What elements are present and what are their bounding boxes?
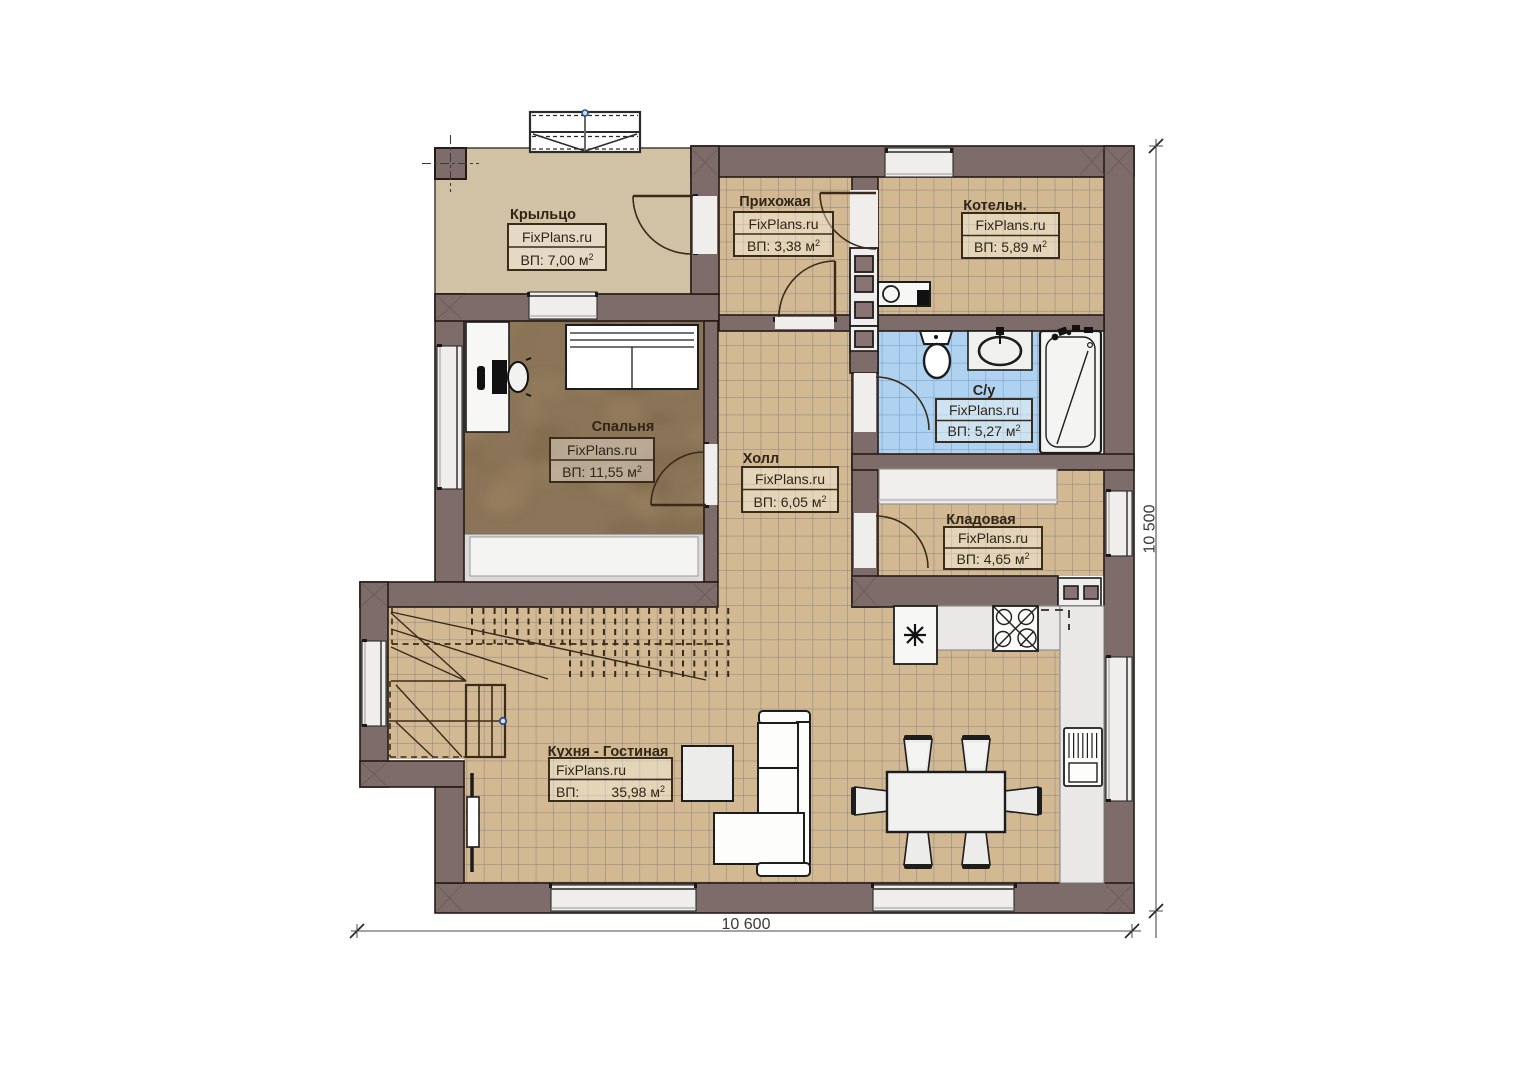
svg-text:ВП: 5,89 м2: ВП: 5,89 м2 <box>974 239 1047 255</box>
svg-text:FixPlans.ru: FixPlans.ru <box>522 229 592 245</box>
svg-text:10 500: 10 500 <box>1142 504 1159 553</box>
svg-text:10 600: 10 600 <box>722 916 771 933</box>
svg-text:Котельн.: Котельн. <box>963 198 1026 214</box>
svg-text:С/у: С/у <box>973 383 996 399</box>
svg-text:ВП: 6,05 м2: ВП: 6,05 м2 <box>754 494 827 510</box>
svg-text:FixPlans.ru: FixPlans.ru <box>748 216 818 232</box>
svg-text:ВП: 7,00 м2: ВП: 7,00 м2 <box>521 252 594 268</box>
svg-text:35,98 м2: 35,98 м2 <box>611 784 665 800</box>
svg-text:ВП: 3,38 м2: ВП: 3,38 м2 <box>747 238 820 254</box>
svg-text:FixPlans.ru: FixPlans.ru <box>556 762 626 778</box>
svg-text:Прихожая: Прихожая <box>739 194 811 210</box>
svg-text:FixPlans.ru: FixPlans.ru <box>949 402 1019 418</box>
svg-text:FixPlans.ru: FixPlans.ru <box>755 471 825 487</box>
svg-text:Кладовая: Кладовая <box>946 512 1015 528</box>
svg-text:ВП: 5,27 м2: ВП: 5,27 м2 <box>948 423 1021 439</box>
svg-text:Крыльцо: Крыльцо <box>510 207 576 223</box>
svg-text:ВП: 4,65 м2: ВП: 4,65 м2 <box>957 551 1030 567</box>
svg-text:FixPlans.ru: FixPlans.ru <box>958 530 1028 546</box>
svg-text:Спальня: Спальня <box>592 419 655 435</box>
svg-text:ВП: 11,55 м2: ВП: 11,55 м2 <box>562 464 642 480</box>
svg-text:FixPlans.ru: FixPlans.ru <box>975 217 1045 233</box>
svg-text:ВП:: ВП: <box>556 784 579 800</box>
svg-text:FixPlans.ru: FixPlans.ru <box>567 442 637 458</box>
svg-text:Холл: Холл <box>743 451 779 467</box>
